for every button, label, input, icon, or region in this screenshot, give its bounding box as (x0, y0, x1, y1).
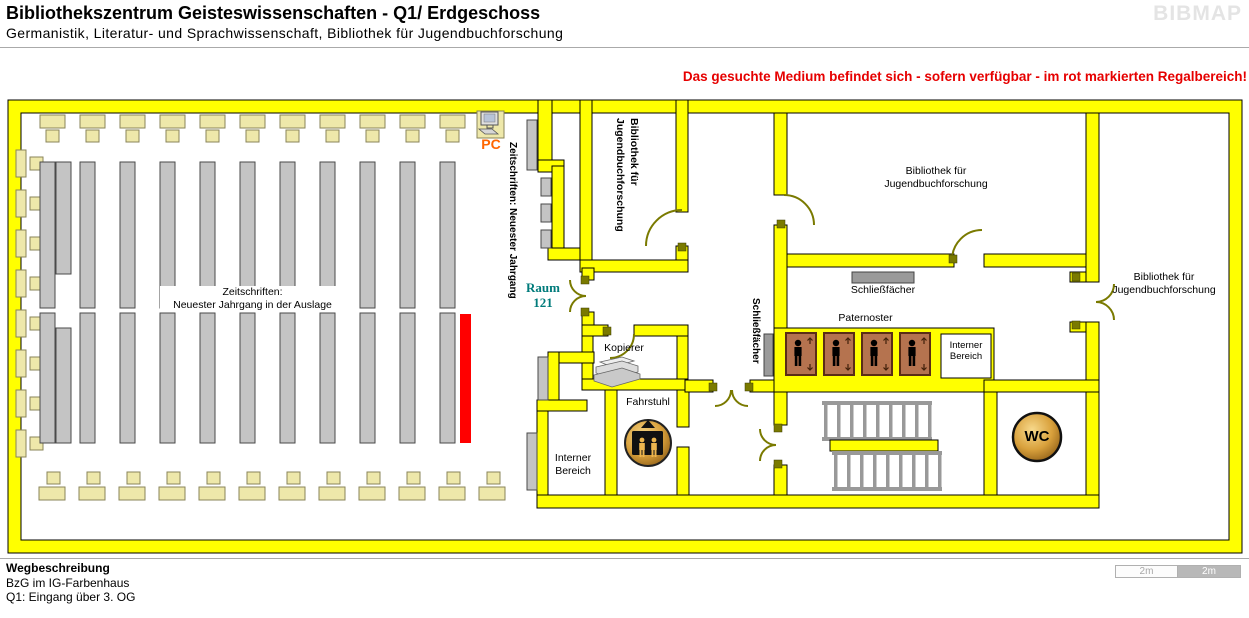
elevator-icon (625, 420, 671, 466)
label-zeitschriften-regal: Zeitschriften: Neuester Jahrgang (505, 142, 519, 320)
label-pc: PC (476, 136, 506, 152)
label-jugendbuch-room-left: Bibliothek für Jugendbuchforschung (611, 118, 641, 268)
label-zeitschriften-auslage: Zeitschriften: Neuester Jahrgang in der … (160, 286, 345, 311)
label-schliessfaecher-top: Schließfächer (843, 284, 923, 297)
stairs (822, 401, 942, 491)
lockers-top (852, 272, 914, 283)
label-raum-121: Raum 121 (518, 280, 568, 310)
label-interner-bereich-right: Interner Bereich (941, 340, 991, 362)
label-wc: WC (1019, 428, 1055, 445)
label-paternoster: Paternoster (818, 312, 913, 325)
label-fahrstuhl: Fahrstuhl (612, 396, 684, 409)
label-jugendbuch-room-center: Bibliothek für Jugendbuchforschung (855, 165, 1017, 190)
label-interner-bereich-left: Interner Bereich (540, 452, 606, 477)
label-schliessfaecher-side: Schließfächer (748, 298, 762, 382)
label-jugendbuch-room-right: Bibliothek für Jugendbuchforschung (1102, 271, 1226, 296)
pc-icon (477, 111, 504, 138)
highlighted-shelf (460, 314, 471, 443)
scale-segment-2: 2m (1178, 565, 1241, 578)
map-scale-bar: 2m 2m (1115, 565, 1241, 578)
lockers-side (764, 334, 773, 376)
scale-segment-1: 2m (1115, 565, 1178, 578)
label-kopierer: Kopierer (592, 342, 656, 355)
